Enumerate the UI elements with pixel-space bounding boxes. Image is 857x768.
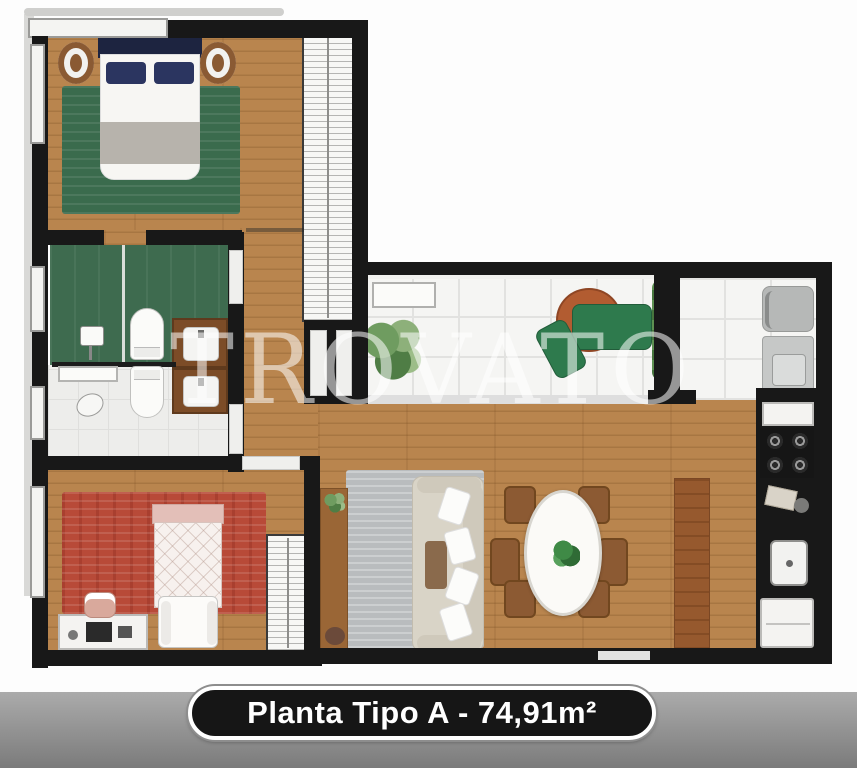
kitchen-sink <box>770 540 808 586</box>
desk-item-2 <box>68 630 78 640</box>
bottom-wall-sill <box>598 651 650 660</box>
refrigerator <box>760 598 814 648</box>
desk-item <box>118 626 132 638</box>
sideboard <box>320 488 348 650</box>
bath2-shelf <box>58 366 118 382</box>
sofa <box>412 476 484 652</box>
bedroom1-left-window <box>30 44 45 144</box>
dining-chair-right <box>598 538 628 586</box>
sideboard-item <box>325 627 345 645</box>
armchair-arm-right <box>207 601 217 645</box>
laundry-tank <box>762 336 814 392</box>
bed-blanket <box>100 122 200 164</box>
bathroom2-window <box>30 386 45 440</box>
bathroom1-window <box>30 266 45 332</box>
floor-plan-image: TROVATO Planta Tipo A - 74,91m² <box>0 0 857 768</box>
wall-bedroom2-east <box>304 456 320 664</box>
hall-threshold <box>246 228 304 232</box>
sideboard-plant <box>324 493 346 513</box>
wall-main-bottom <box>318 648 832 664</box>
sofa-throw <box>425 541 447 589</box>
bedroom1-wardrobe <box>302 34 354 322</box>
nightstand-right <box>200 42 236 84</box>
watermark: TROVATO <box>170 322 695 418</box>
bed-pillow-left <box>106 62 146 84</box>
shower-partition <box>122 244 125 362</box>
kitchen-island <box>674 478 710 650</box>
bathroom1-door-opening <box>104 230 146 245</box>
bedroom2-window <box>30 486 45 598</box>
washing-machine <box>762 286 814 332</box>
wall-right <box>816 262 832 664</box>
dining-chair-left <box>490 538 520 586</box>
kitchen-counter-white <box>762 402 814 426</box>
counter-bowl <box>794 498 809 513</box>
dining-table <box>524 490 602 616</box>
nightstand-left <box>58 42 94 84</box>
facade-line-top <box>24 8 284 16</box>
plan-title-badge: Planta Tipo A - 74,91m² <box>188 686 656 740</box>
centerpiece-plant <box>552 539 580 567</box>
sink-faucet <box>786 560 793 567</box>
toilet-1 <box>130 308 164 360</box>
single-bed <box>152 504 224 650</box>
wall-bedroom2-bottom <box>32 650 322 666</box>
shower-head <box>80 326 104 346</box>
balcony-glass-line <box>368 275 654 279</box>
armchair-arm-left <box>161 601 171 645</box>
toilet-1-tank <box>134 347 160 357</box>
cooktop <box>760 428 814 478</box>
double-bed <box>98 36 202 180</box>
foot-armchair <box>158 596 218 648</box>
toilet-2-tank <box>134 370 160 380</box>
laptop <box>86 622 112 642</box>
tank-basin <box>772 354 806 386</box>
fridge-line <box>766 623 810 625</box>
wardrobe-rail <box>327 38 329 318</box>
balcony-bench <box>372 282 436 308</box>
toilet-2 <box>130 366 164 418</box>
washer-door <box>765 291 777 329</box>
bedroom2-door <box>242 456 300 470</box>
desk <box>58 614 148 650</box>
bed-pillow-right <box>154 62 194 84</box>
shower-stem <box>89 346 92 360</box>
wardrobe2-divider <box>287 538 289 648</box>
bedroom1-top-window <box>28 18 168 38</box>
plan-title-label: Planta Tipo A - 74,91m² <box>247 695 597 731</box>
single-bed-headboard <box>152 504 224 524</box>
desk-chair <box>84 592 116 618</box>
bath1-door <box>229 250 243 304</box>
wall-top-bedroom1 <box>166 20 368 38</box>
